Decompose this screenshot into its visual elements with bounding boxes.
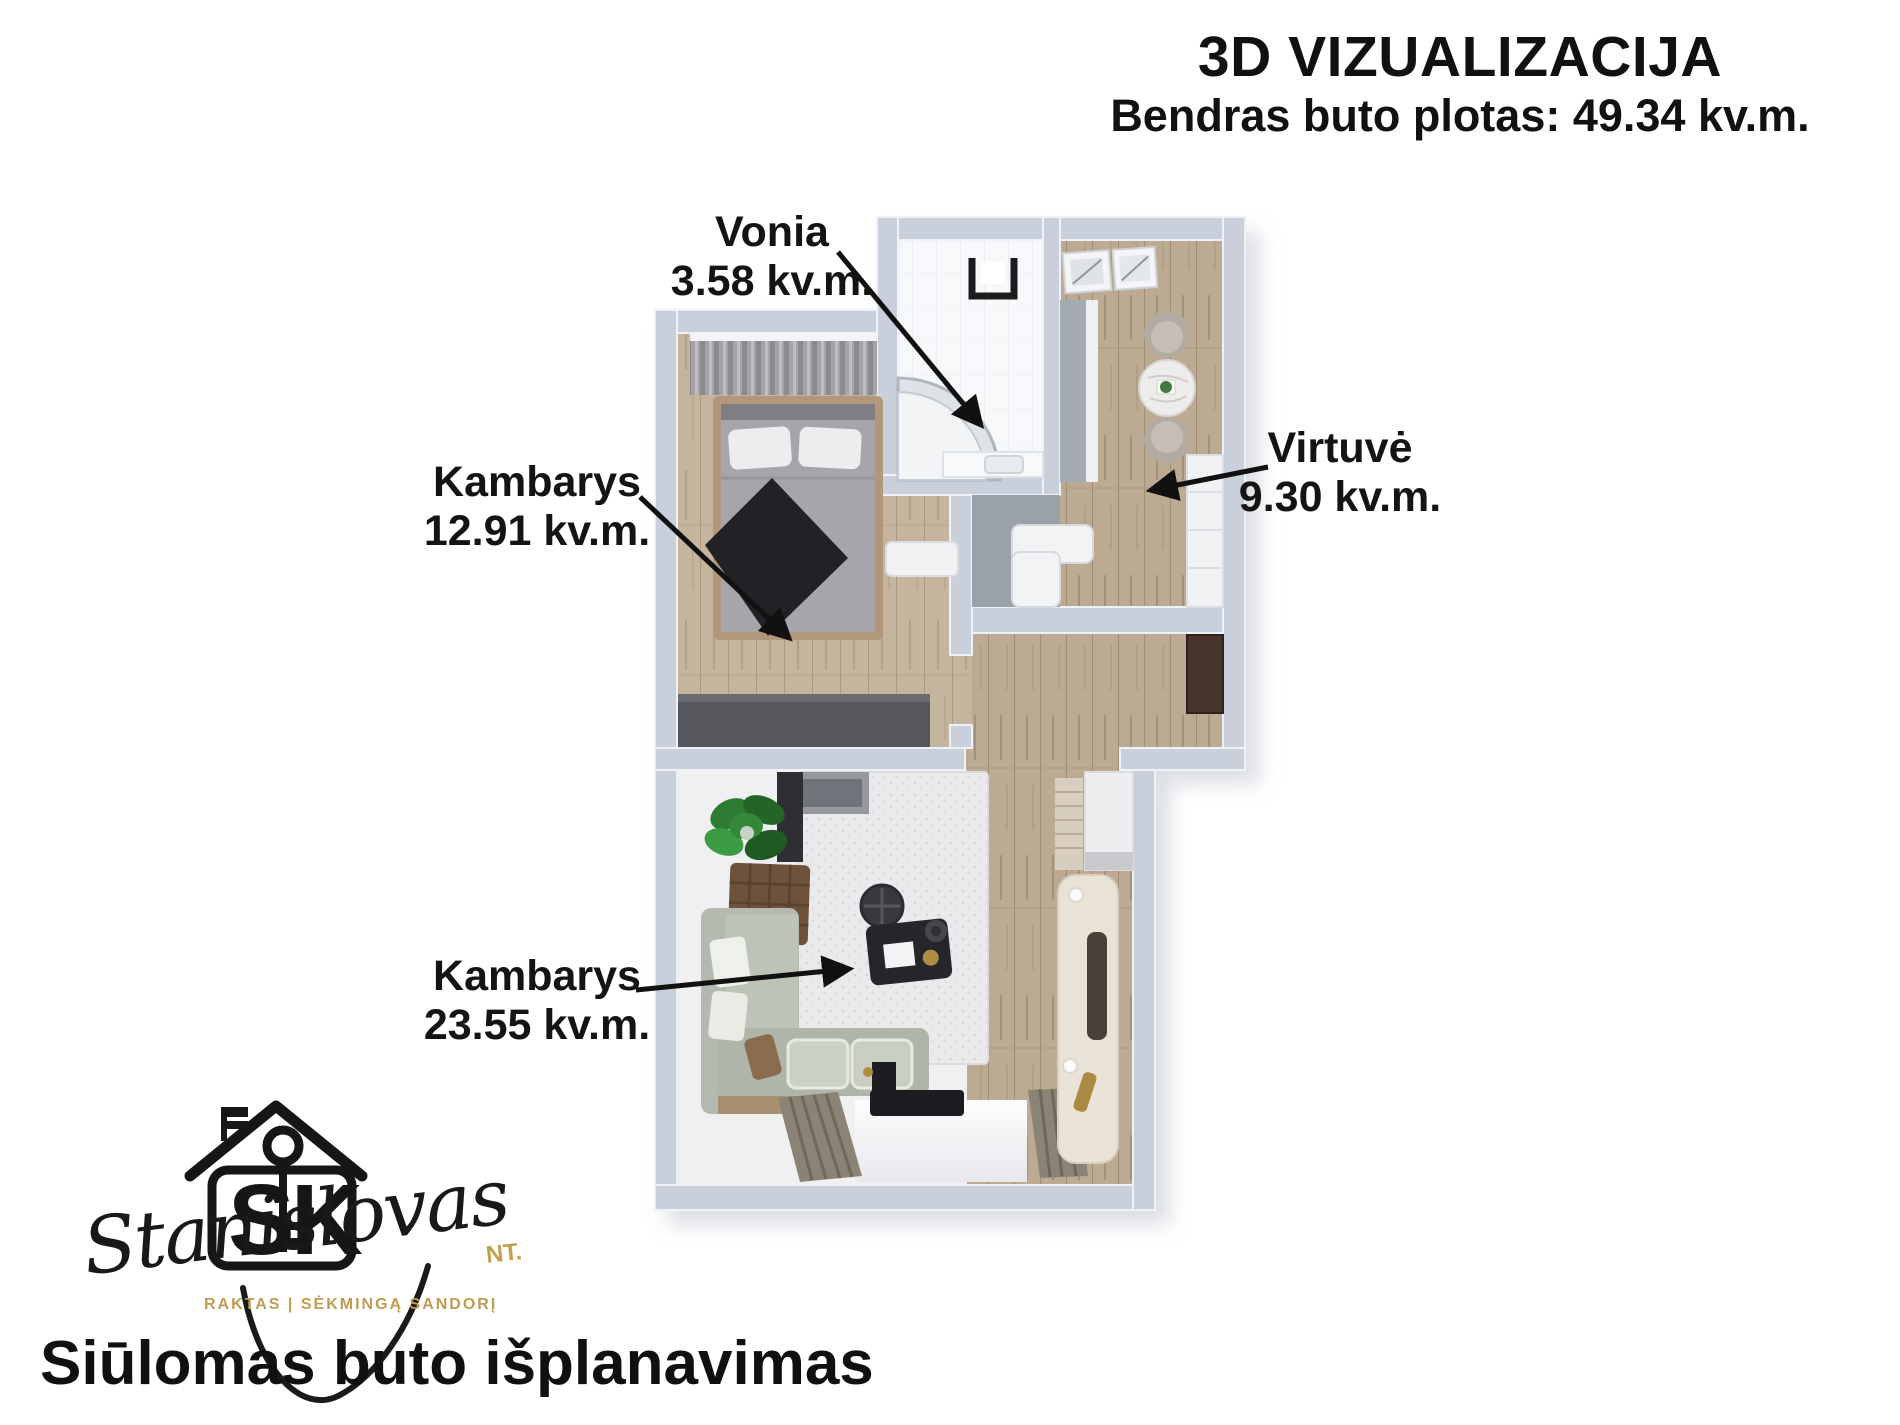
logo-tagline: RAKTAS | SĖKMINGĄ SANDORĮ [204,1296,497,1314]
room-name: Kambarys [367,458,707,507]
page-subtitle: Bendras buto plotas: 49.34 kv.m. [1040,90,1880,142]
pillow [798,426,862,469]
closet [1085,772,1133,870]
coffee-table [861,885,903,927]
room-label-virtuve: Virtuvė 9.30 kv.m. [1170,424,1510,522]
room-area: 9.30 kv.m. [1170,473,1510,522]
room-label-vonia: Vonia 3.58 kv.m. [602,208,942,306]
washbasin [943,452,1043,477]
room-area: 23.55 kv.m. [367,1001,707,1050]
sofa-pillow [708,990,749,1042]
room-name: Virtuvė [1170,424,1510,473]
page-title: 3D VIZUALIZACIJA [1040,26,1880,90]
entry-door [1187,635,1223,713]
footer-heading: Siūlomas buto išplanavimas [40,1328,874,1399]
floorplan-poster: SK 3D VIZUALIZACIJA Bendras buto plotas:… [0,0,1900,1425]
media-console [865,918,953,986]
room-name: Kambarys [367,952,707,1001]
bedroom-curtains [690,341,877,395]
logo-brand-suffix: NT. [485,1238,524,1270]
radiator-bench [1055,778,1083,870]
bed [705,396,883,640]
room-name: Vonia [602,208,942,257]
room-label-kambarys-1: Kambarys 12.91 kv.m. [367,458,707,556]
room-area: 12.91 kv.m. [367,507,707,556]
pillow [728,426,793,470]
vanity-desk [1058,875,1118,1163]
hallway [1187,635,1223,713]
wardrobe [678,694,930,747]
kitchen-counter-left [1060,300,1098,482]
room-label-kambarys-2: Kambarys 23.55 kv.m. [367,952,707,1050]
room-area: 3.58 kv.m. [602,257,942,306]
header: 3D VIZUALIZACIJA Bendras buto plotas: 49… [1040,26,1880,142]
bedroom-bench [886,542,958,576]
